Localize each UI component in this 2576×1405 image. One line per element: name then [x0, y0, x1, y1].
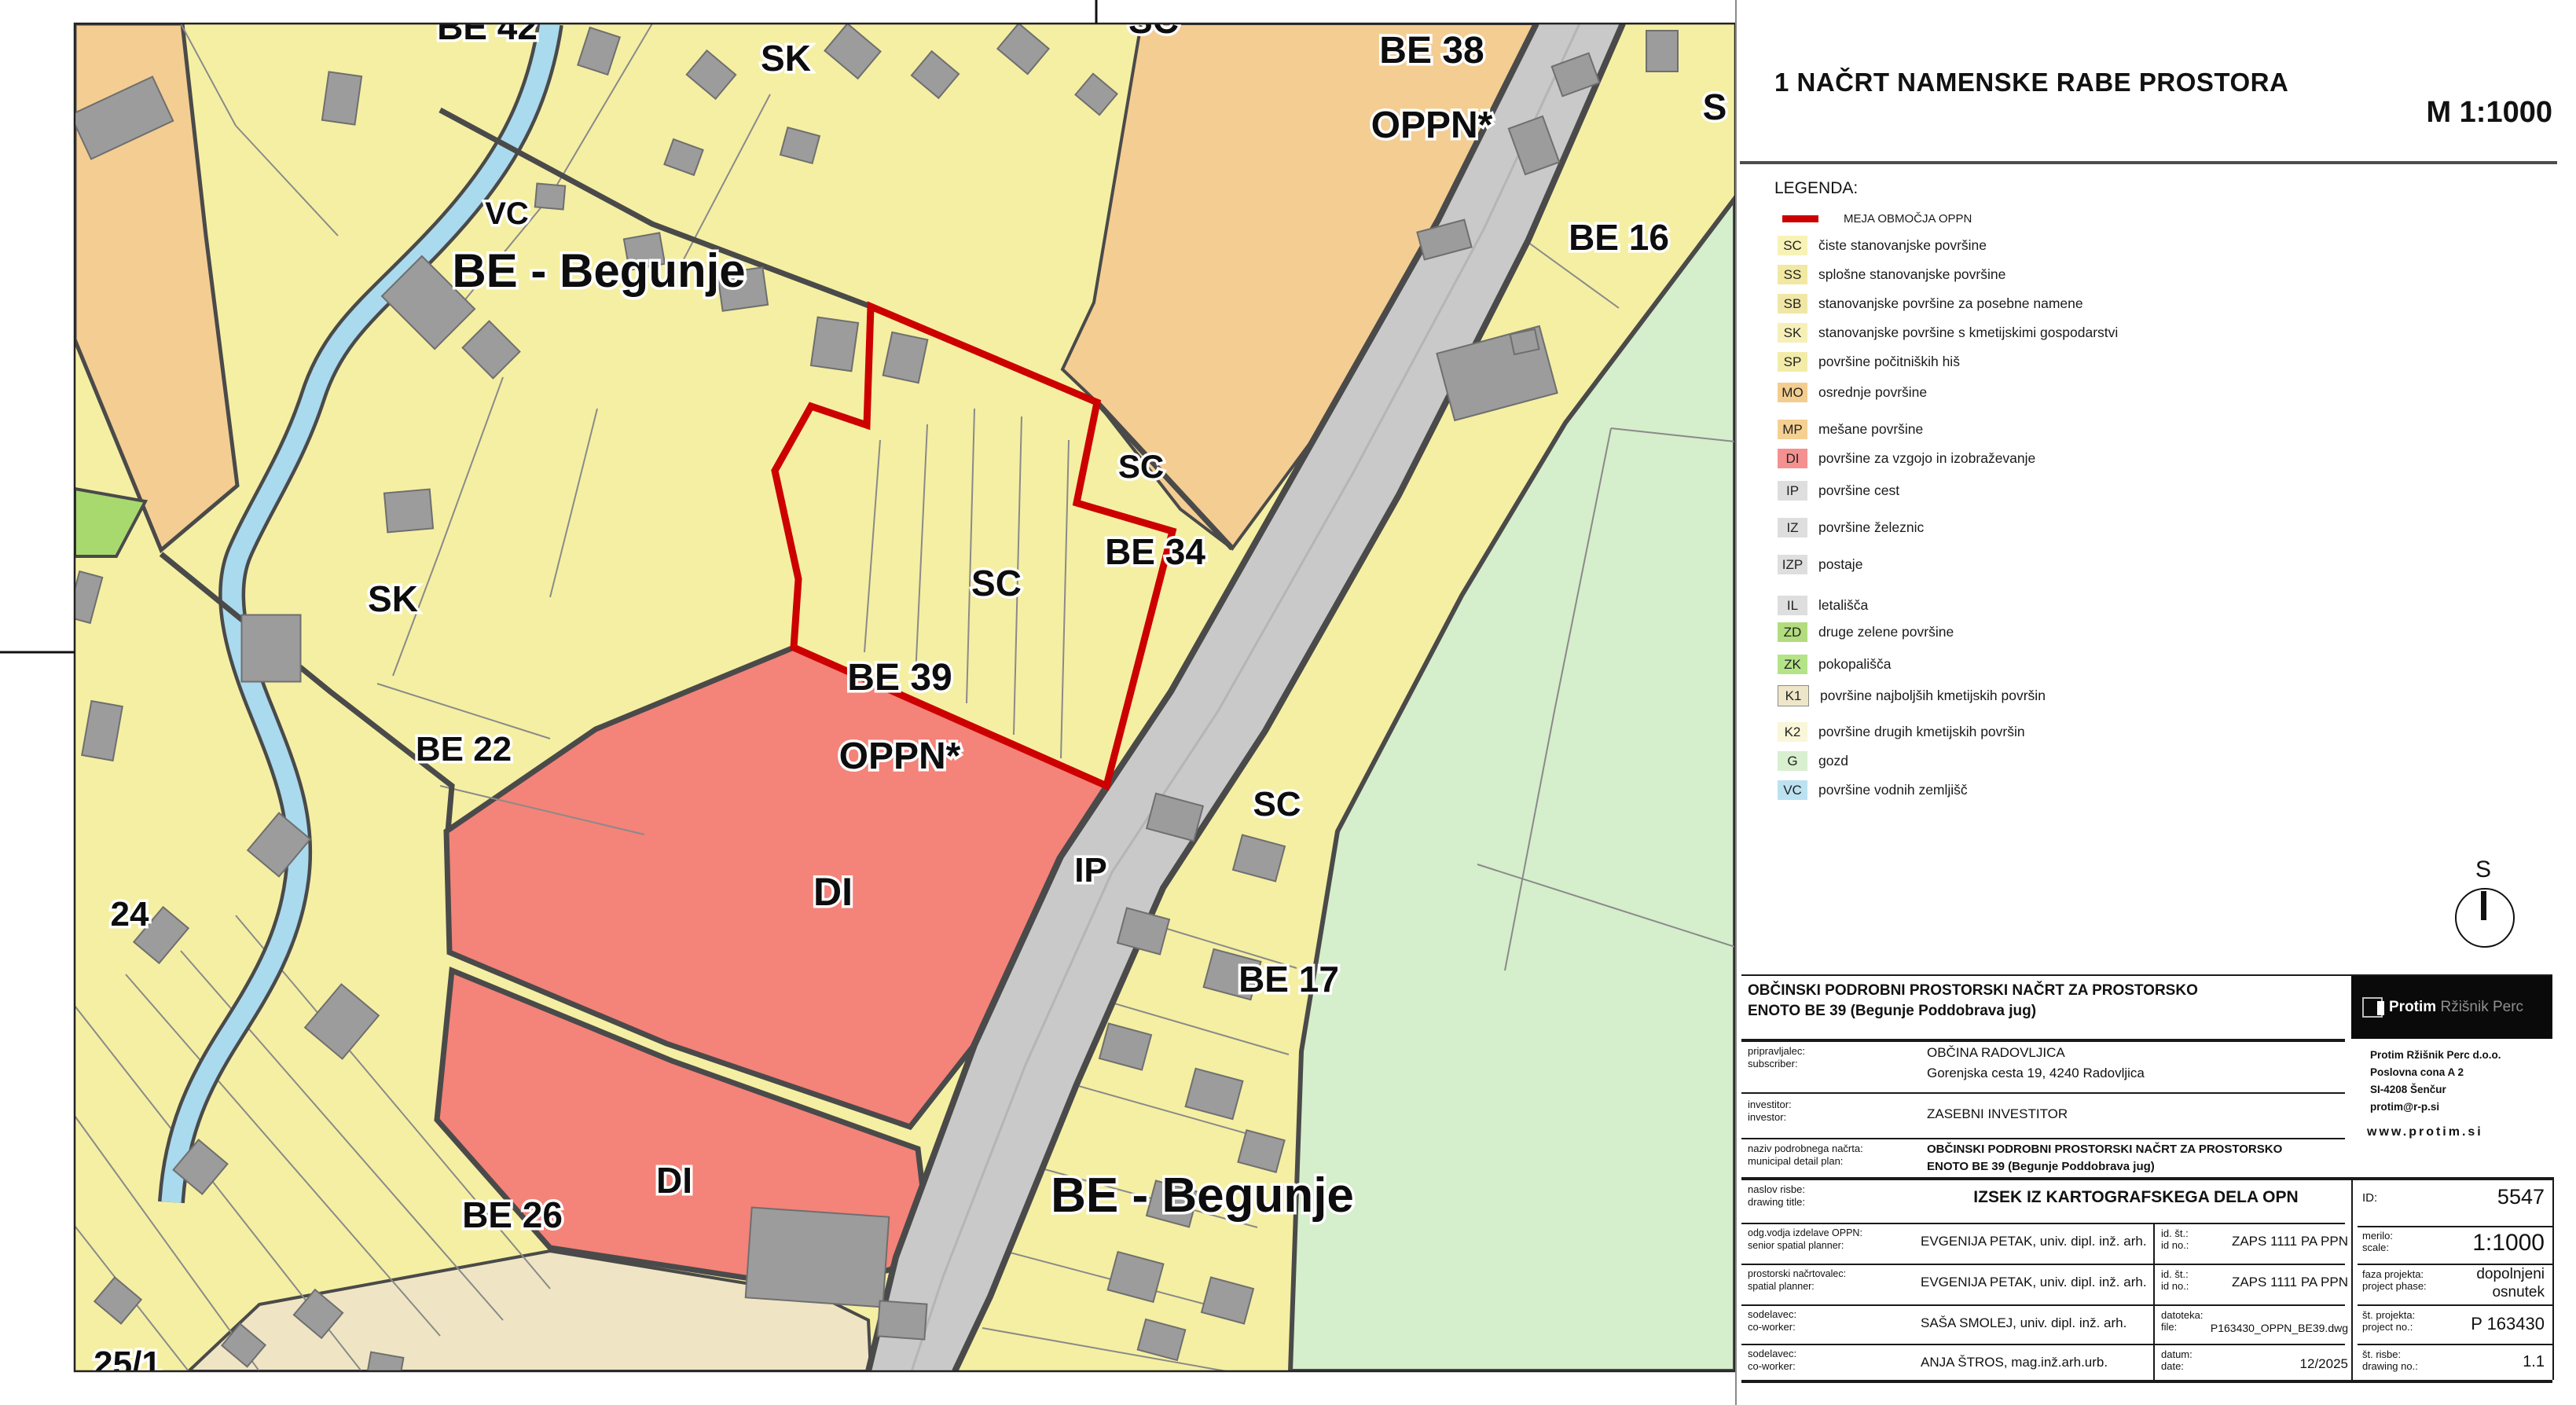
company-address: Protim Ržišnik Perc d.o.o. Poslovna cona… [2370, 1047, 2501, 1116]
map-label-be-16: BE 16 [1569, 217, 1669, 258]
legend-label: površine cest [1818, 482, 1899, 499]
subscriber-name: OBČINA RADOVLJICA [1927, 1045, 2065, 1061]
map-label-sk: SK [761, 38, 811, 79]
map-label-ip: IP [1074, 851, 1107, 890]
logo-web[interactable]: www.protim.si [2367, 1125, 2483, 1139]
zoning-map[interactable]: BE 42SKSCBE 38OPPN*SBE 16VCBE - BegunjeS… [0, 0, 1735, 1405]
legend-item-SB: SBstanovanjske površine za posebne namen… [1778, 289, 2281, 318]
drawing-title-value: IZSEK IZ KARTOGRAFSKEGA DELA OPN [1927, 1188, 2345, 1207]
protim-logo-icon [2362, 997, 2383, 1018]
legend-item-ZK: ZKpokopališča [1778, 650, 2281, 679]
map-label-be-22: BE 22 [416, 730, 512, 769]
building [1646, 31, 1678, 72]
logo-name-dim: Ržišnik Perc [2436, 999, 2523, 1015]
map-canvas: BE 42SKSCBE 38OPPN*SBE 16VCBE - BegunjeS… [0, 0, 1735, 1405]
map-label-di: DI [813, 870, 853, 914]
legend-label: mešane površine [1818, 421, 1923, 438]
legend-label: druge zelene površine [1818, 624, 1954, 640]
legend-label: površine počitniških hiš [1818, 354, 1960, 370]
coworker2-value: ANJA ŠTROS, mag.inž.arh.urb. [1921, 1355, 2108, 1370]
coworker1-label: sodelavec:co-worker: [1748, 1308, 1796, 1333]
id-value: 5547 [2417, 1185, 2545, 1209]
legend-item-SP: SPpovršine počitniških hiš [1778, 347, 2281, 376]
map-label-sk: SK [368, 578, 418, 619]
legend-label: površine vodnih zemljišč [1818, 782, 1968, 798]
legend-item-SK: SKstanovanjske površine s kmetijskimi go… [1778, 318, 2281, 347]
spatial-planner-label: prostorski načrtovalec:spatial planner: [1748, 1267, 1846, 1293]
building [1510, 329, 1539, 354]
map-label-sc: SC [1253, 785, 1301, 824]
legend-label: MEJA OBMOČJA OPPN [1844, 212, 1972, 226]
plan-name-label: naziv podrobnega načrta:municipal detail… [1748, 1143, 1863, 1168]
coworker1-value: SAŠA SMOLEJ, univ. dipl. inž. arh. [1921, 1315, 2126, 1331]
title-block: OBČINSKI PODROBNI PROSTORSKI NAČRT ZA PR… [1741, 974, 2560, 1381]
north-arrow: S [2444, 857, 2523, 959]
legend-label: stanovanjske površine za posebne namene [1818, 295, 2083, 312]
map-label-be-38: BE 38 [1379, 30, 1484, 72]
info-panel: 1 NAČRT NAMENSKE RABE PROSTORA M 1:1000 … [1735, 0, 2576, 1405]
legend-chip-SC: SC [1778, 236, 1807, 255]
map-label-s: S [1703, 86, 1727, 127]
date-label: datum:date: [2161, 1348, 2193, 1372]
project-title-line2: ENOTO BE 39 (Begunje Poddobrava jug) [1748, 1001, 2345, 1022]
legend-item-K1: K1površine najboljših kmetijskih površin [1778, 681, 2281, 710]
legend-chip-MP: MP [1778, 420, 1807, 439]
page-title: 1 NAČRT NAMENSKE RABE PROSTORA [1774, 68, 2288, 97]
project-title-line1: OBČINSKI PODROBNI PROSTORSKI NAČRT ZA PR… [1748, 981, 2345, 1001]
legend-chip-SB: SB [1778, 294, 1807, 314]
building [384, 490, 433, 533]
legend-chip-ZD: ZD [1778, 622, 1807, 642]
legend-label: stanovanjske površine s kmetijskimi gosp… [1818, 325, 2118, 341]
map-label-be-26: BE 26 [462, 1194, 563, 1235]
logo-email[interactable]: protim@r-p.si [2370, 1099, 2501, 1116]
spatial-planner-value: EVGENIJA PETAK, univ. dipl. inž. arh. [1921, 1275, 2147, 1290]
map-label-sc: SC [971, 563, 1022, 603]
building [811, 317, 858, 372]
map-label-24: 24 [111, 895, 149, 934]
legend-chip-ZK: ZK [1778, 655, 1807, 674]
map-label-di: DI [656, 1160, 692, 1201]
drawno-value: 1.1 [2417, 1353, 2545, 1371]
file-label: datoteka:file: [2161, 1309, 2204, 1333]
legend-chip-G: G [1778, 751, 1807, 771]
plan-name-line2: ENOTO BE 39 (Begunje Poddobrava jug) [1927, 1158, 2351, 1176]
coworker2-label: sodelavec:co-worker: [1748, 1348, 1796, 1373]
idno1-label: id. št.:id no.: [2161, 1227, 2189, 1251]
building [878, 1300, 927, 1339]
investor-label: investitor:investor: [1748, 1099, 1792, 1124]
map-label-be-17: BE 17 [1238, 959, 1339, 1000]
map-label-be-begunje: BE - Begunje [452, 244, 745, 297]
building [242, 615, 301, 682]
investor-value: ZASEBNI INVESTITOR [1927, 1106, 2068, 1122]
legend-label: čiste stanovanjske površine [1818, 237, 1987, 254]
legend-item-IL: ILletališča [1778, 591, 2281, 620]
legend-chip-IZP: IZP [1778, 555, 1807, 574]
north-needle [2481, 891, 2486, 920]
legend: MEJA OBMOČJA OPPNSCčiste stanovanjske po… [1778, 206, 2281, 805]
legend-heading: LEGENDA: [1774, 179, 1858, 198]
legend-label: gozd [1818, 753, 1848, 769]
idno2-value: ZAPS 1111 PA PPN [2205, 1275, 2348, 1290]
date-value: 12/2025 [2205, 1356, 2348, 1372]
company-logo: Protim Ržišnik Perc [2351, 976, 2552, 1039]
legend-item-SC: SCčiste stanovanjske površine [1778, 231, 2281, 260]
legend-label: površine železnic [1818, 519, 1924, 536]
drawing-title-label: naslov risbe:drawing title: [1748, 1183, 1805, 1209]
legend-chip-SS: SS [1778, 265, 1807, 284]
map-label-oppn-: OPPN* [1371, 105, 1493, 146]
legend-label: osrednje površine [1818, 384, 1927, 401]
scale-label: merilo:scale: [2362, 1230, 2393, 1253]
legend-label: površine najboljših kmetijskih površin [1820, 688, 2046, 704]
senior-planner-label: odg.vodja izdelave OPPN:senior spatial p… [1748, 1227, 1862, 1252]
map-scale-label: M 1:1000 [1774, 96, 2552, 130]
legend-label: splošne stanovanjske površine [1818, 266, 2005, 283]
plan-name-line1: OBČINSKI PODROBNI PROSTORSKI NAČRT ZA PR… [1927, 1141, 2351, 1158]
divider [1740, 161, 2557, 164]
map-label-be-begunje: BE - Begunje [1051, 1168, 1354, 1223]
legend-chip-SP: SP [1778, 352, 1807, 372]
legend-chip-SK: SK [1778, 323, 1807, 343]
legend-label: postaje [1818, 556, 1862, 573]
legend-item-DI: DIpovršine za vzgojo in izobraževanje [1778, 444, 2281, 473]
legend-chip-K2: K2 [1778, 722, 1807, 742]
phase-value: dopolnjeniosnutek [2417, 1265, 2545, 1301]
logo-company: Protim Ržišnik Perc d.o.o. [2370, 1047, 2501, 1064]
building [535, 183, 565, 209]
legend-item-SS: SSsplošne stanovanjske površine [1778, 260, 2281, 289]
file-value: P163430_OPPN_BE39.dwg [2199, 1322, 2348, 1334]
legend-item-boundary: MEJA OBMOČJA OPPN [1778, 206, 2281, 231]
building [322, 72, 361, 124]
legend-label: površine za vzgojo in izobraževanje [1818, 450, 2035, 467]
projno-label: št. projekta:project no.: [2362, 1309, 2415, 1333]
projno-value: P 163430 [2417, 1314, 2545, 1334]
legend-item-IZP: IZPpostaje [1778, 550, 2281, 579]
building [746, 1208, 890, 1308]
legend-chip-IP: IP [1778, 481, 1807, 501]
legend-chip-DI: DI [1778, 449, 1807, 468]
id-label: ID: [2362, 1191, 2377, 1205]
legend-item-K2: K2površine drugih kmetijskih površin [1778, 717, 2281, 747]
legend-label: letališča [1818, 597, 1868, 614]
map-label-sc: SC [1118, 448, 1164, 485]
legend-chip-VC: VC [1778, 780, 1807, 800]
legend-item-IP: IPpovršine cest [1778, 476, 2281, 505]
logo-address2: SI-4208 Šenčur [2370, 1081, 2501, 1099]
logo-name: Protim [2389, 999, 2436, 1015]
legend-chip-IL: IL [1778, 596, 1807, 615]
drawno-label: št. risbe:drawing no.: [2362, 1348, 2418, 1372]
legend-chip-IZ: IZ [1778, 518, 1807, 537]
legend-chip-MO: MO [1778, 383, 1807, 402]
map-label-be-39: BE 39 [847, 657, 952, 699]
legend-item-G: Ggozd [1778, 747, 2281, 776]
map-label-oppn-: OPPN* [839, 736, 961, 777]
senior-planner-value: EVGENIJA PETAK, univ. dipl. inž. arh. [1921, 1234, 2147, 1249]
map-label-be-34: BE 34 [1105, 531, 1205, 572]
legend-item-MP: MPmešane površine [1778, 415, 2281, 444]
logo-address1: Poslovna cona A 2 [2370, 1064, 2501, 1081]
subscriber-label: pripravljalec:subscriber: [1748, 1045, 1805, 1070]
oppn-boundary-swatch [1782, 215, 1818, 222]
legend-item-IZ: IZpovršine železnic [1778, 513, 2281, 542]
legend-label: pokopališča [1818, 656, 1891, 673]
scale-value: 1:1000 [2417, 1230, 2545, 1256]
north-letter: S [2444, 857, 2523, 883]
map-label-vc: VC [485, 196, 529, 231]
subscriber-address: Gorenjska cesta 19, 4240 Radovljica [1927, 1066, 2145, 1081]
legend-item-MO: MOosrednje površine [1778, 378, 2281, 407]
idno1-value: ZAPS 1111 PA PPN [2205, 1234, 2348, 1249]
legend-label: površine drugih kmetijskih površin [1818, 724, 2025, 740]
legend-item-ZD: ZDdruge zelene površine [1778, 618, 2281, 647]
idno2-label: id. št.:id no.: [2161, 1268, 2189, 1292]
legend-chip-K1: K1 [1778, 685, 1809, 706]
legend-item-VC: VCpovršine vodnih zemljišč [1778, 776, 2281, 805]
